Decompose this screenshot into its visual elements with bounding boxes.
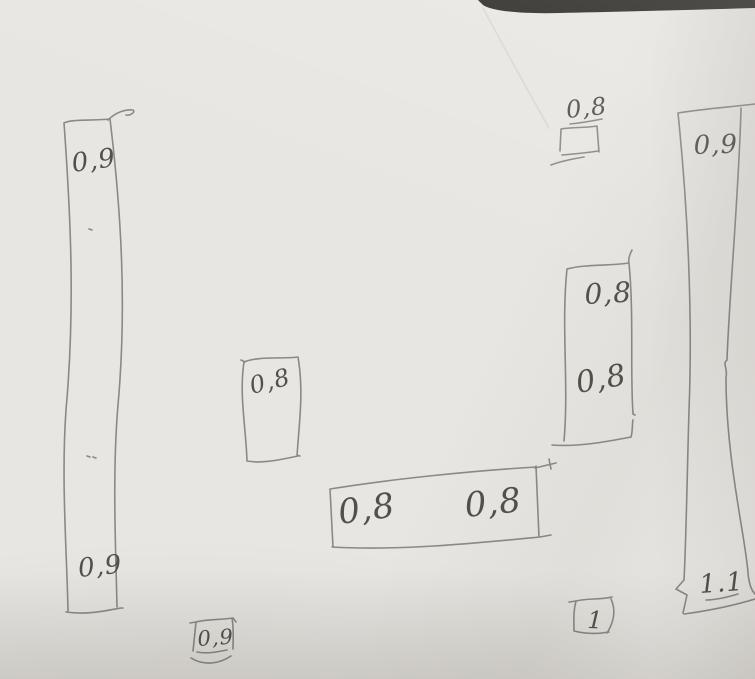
wide-box-label-left: 0,8 [336, 485, 398, 533]
far-right-bar-label-top: 0,9 [693, 129, 738, 161]
bottom-left-note-label: 0,9 [197, 625, 235, 651]
sketch-canvas: 0,9 0,9 0,8 0,8 0,8 0,8 0,8 0,8 0,9 1.1 … [0, 0, 755, 679]
photo-of-paper-sketch: 0,9 0,9 0,8 0,8 0,8 0,8 0,8 0,8 0,9 1.1 … [0, 0, 755, 679]
top-square-label: 0,8 [565, 92, 609, 124]
wide-box-label-right: 0,8 [463, 480, 524, 526]
bottom-right-note-label: 1 [587, 606, 604, 635]
right-box-label-top: 0,8 [584, 276, 633, 311]
left-bar-label-top: 0,9 [70, 143, 118, 179]
far-right-bar-label-bottom: 1.1 [698, 567, 744, 600]
left-bar-label-bottom: 0,9 [77, 549, 124, 583]
